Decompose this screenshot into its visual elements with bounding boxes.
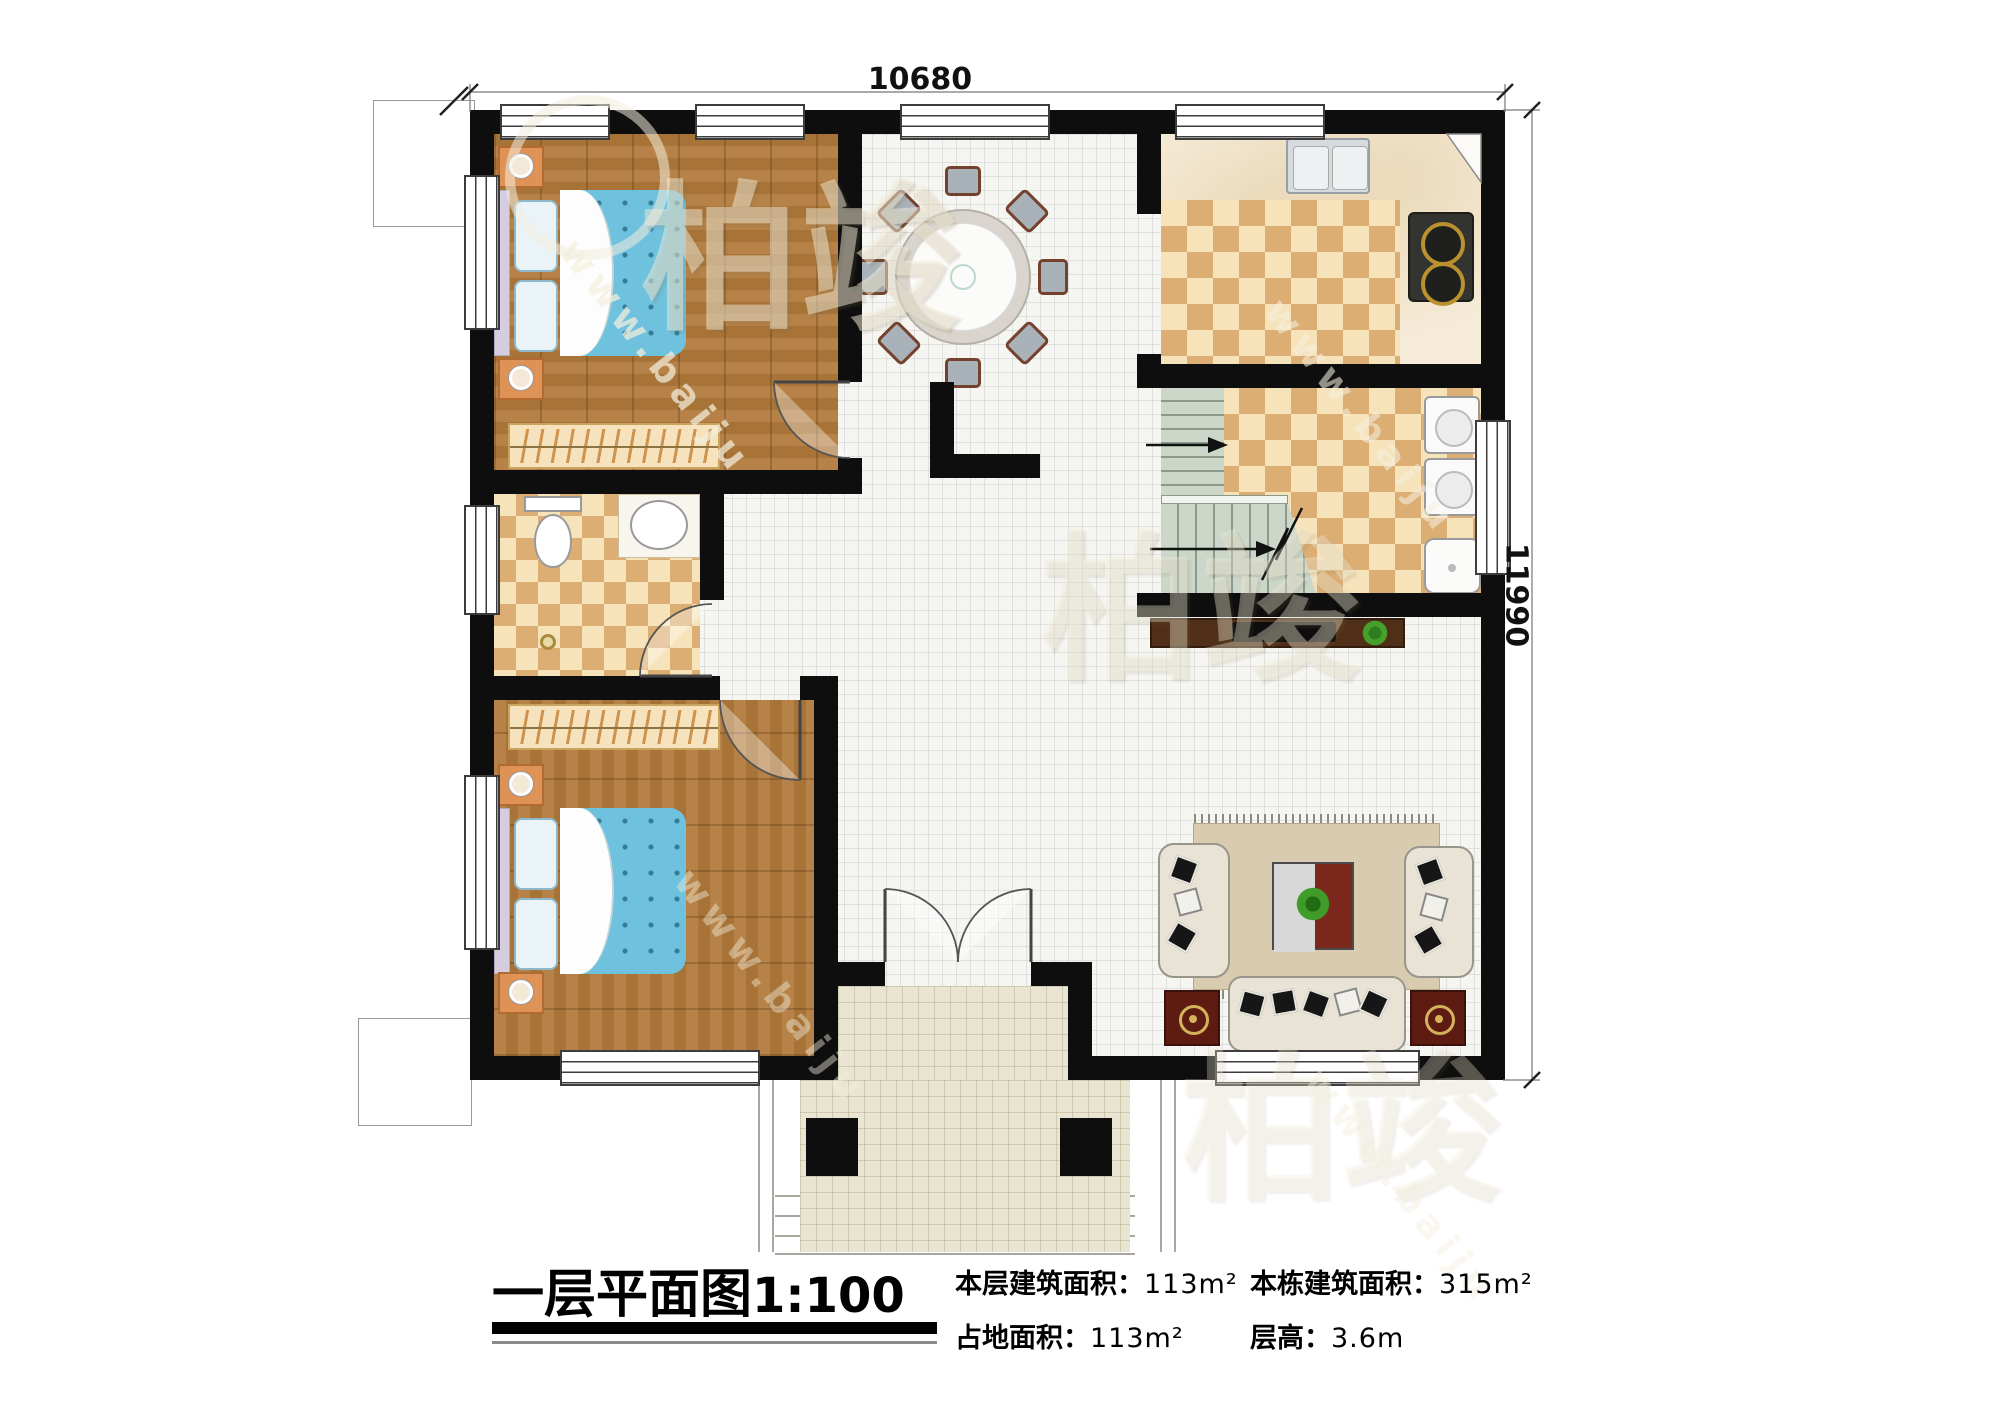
wall-entry-right <box>1031 962 1092 986</box>
nightstand-lamp <box>509 772 533 796</box>
wall-bathroom-top <box>470 470 862 494</box>
window-bedroom1-top2 <box>695 104 805 140</box>
sofa-pillow <box>1270 988 1298 1016</box>
axis-box-bottom-left <box>358 1018 472 1126</box>
axis-box-top-left <box>373 100 475 227</box>
kitchen-floor <box>1161 200 1400 364</box>
porch-side-step <box>1160 1080 1162 1252</box>
wall-bathroom-bottom <box>470 676 720 700</box>
porch-side-step <box>758 1080 760 1252</box>
stat-label: 本栋建筑面积： <box>1250 1269 1439 1300</box>
stair-upper-flight <box>1161 388 1224 495</box>
laundry-basin <box>1424 538 1481 594</box>
stat-total-area: 本栋建筑面积：315m² <box>1250 1262 1533 1301</box>
table-plant <box>1295 886 1331 922</box>
wall-bedroom2-right <box>814 700 838 1080</box>
window-bedroom1-top <box>500 104 610 140</box>
washing-machine <box>1424 396 1480 454</box>
kitchen-sink <box>1286 138 1370 194</box>
stat-floor-area: 本层建筑面积：113m² <box>955 1262 1238 1301</box>
stat-value: 315m² <box>1439 1269 1533 1300</box>
dimension-height: 11990 <box>1499 543 1534 647</box>
room-label-dining: 餐厅 <box>0 52 1000 98</box>
bed-pillow <box>514 898 558 970</box>
nightstand-lamp <box>509 366 533 390</box>
toilet-bowl <box>534 514 572 568</box>
window-dining-top <box>900 104 1050 140</box>
console-plant <box>1362 620 1388 646</box>
porch-side-step <box>1174 1080 1176 1252</box>
wall-dining-stub <box>930 454 1040 478</box>
window-bathroom-left <box>464 505 500 615</box>
porch-pillar <box>806 1118 858 1176</box>
stat-value: 113m² <box>1144 1269 1238 1300</box>
wardrobe <box>508 423 720 469</box>
wall-entry-stub <box>1068 986 1092 1056</box>
dining-chair <box>858 259 888 295</box>
wardrobe <box>508 704 720 750</box>
washing-machine <box>1424 458 1480 516</box>
stat-label: 本层建筑面积： <box>955 1269 1144 1300</box>
tv <box>1232 622 1336 642</box>
dining-chair <box>1038 259 1068 295</box>
dimension-width: 10680 <box>868 62 972 97</box>
wall-laundry-bottom <box>1137 593 1505 617</box>
nightstand-lamp <box>509 154 533 178</box>
room-label-bedroom1: 卧室 <box>0 0 1000 23</box>
bath-sink-basin <box>630 500 688 550</box>
window-bedroom1-left <box>464 175 500 330</box>
nightstand-lamp <box>509 980 533 1004</box>
stove <box>1408 212 1474 302</box>
plan-scale: 1:100 <box>752 1268 905 1324</box>
red-mat <box>1410 990 1466 1046</box>
bed-pillow <box>514 200 558 272</box>
floor-drain <box>540 634 556 650</box>
stat-value: 113m² <box>1090 1323 1184 1354</box>
porch-side-step <box>772 1080 774 1252</box>
wall-bathroom-bottom <box>800 676 838 700</box>
dining-chair <box>945 166 981 196</box>
porch-floor-upper <box>838 986 1068 1080</box>
window-bedroom2-bottom <box>560 1050 760 1086</box>
wall-bathroom-right <box>700 494 724 600</box>
window-kitchen-top <box>1175 104 1325 140</box>
bed-pillow <box>514 818 558 890</box>
wall-kitchen-left <box>1137 110 1161 214</box>
bed-pillow <box>514 280 558 352</box>
window-living-bottom <box>1215 1050 1420 1086</box>
stat-label: 层高： <box>1250 1323 1331 1354</box>
stat-label: 占地面积： <box>955 1323 1090 1354</box>
red-mat <box>1164 990 1220 1046</box>
title-underline <box>492 1322 937 1334</box>
stat-value: 3.6m <box>1331 1323 1404 1354</box>
stat-footprint-area: 占地面积：113m² <box>955 1316 1184 1355</box>
floor-plan: 卧室 12.04m² 餐厅 11.54m² 厨房 8.40m² 洗衣区 7.99… <box>0 0 2000 1413</box>
stat-storey-height: 层高：3.6m <box>1250 1316 1404 1355</box>
wall-kitchen-bottom <box>1137 364 1505 388</box>
window-bedroom2-left <box>464 775 500 950</box>
wall-bedroom1-divider <box>838 110 862 382</box>
porch-pillar <box>1060 1118 1112 1176</box>
dining-table-center <box>950 264 976 290</box>
title-underline-thin <box>492 1341 937 1344</box>
toilet-tank <box>524 496 582 512</box>
stair-landing-rail <box>1161 495 1288 504</box>
plan-title: 一层平面图1:100 <box>492 1252 905 1327</box>
plan-title-text: 一层平面图 <box>492 1265 752 1325</box>
wall-entry-left <box>838 962 885 986</box>
